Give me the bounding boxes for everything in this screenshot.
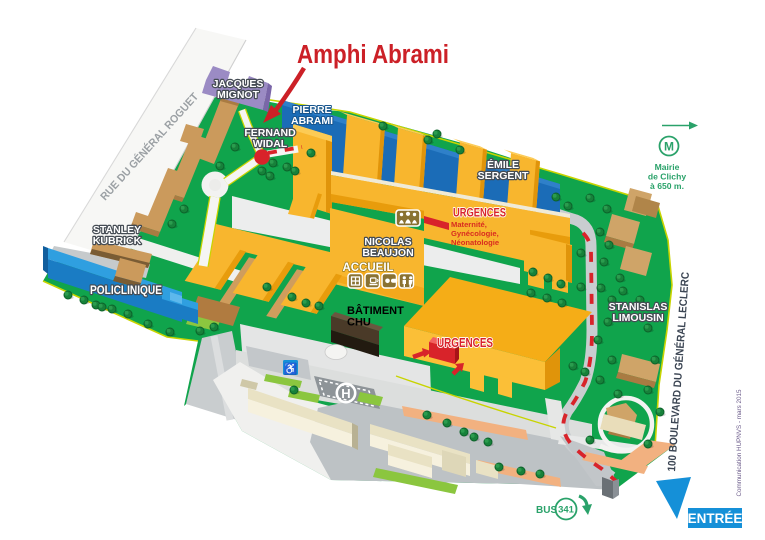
svg-text:Communication HUPNVS - mars 20: Communication HUPNVS - mars 2015 <box>736 389 743 497</box>
svg-text:URGENCES: URGENCES <box>437 336 493 350</box>
svg-text:Amphi Abrami: Amphi Abrami <box>297 41 449 69</box>
svg-text:STANLEYKUBRICK: STANLEYKUBRICK <box>93 224 142 247</box>
svg-text:M: M <box>664 140 674 154</box>
svg-text:JACQUESMIGNOT: JACQUESMIGNOT <box>213 78 264 101</box>
svg-text:BUS: BUS <box>536 505 557 516</box>
svg-text:PIERREABRAMI: PIERREABRAMI <box>291 104 333 127</box>
svg-text:NICOLASBEAUJON: NICOLASBEAUJON <box>362 236 413 259</box>
svg-text:♿: ♿ <box>284 363 298 376</box>
svg-text:341: 341 <box>558 505 575 516</box>
svg-text:ENTRÉE: ENTRÉE <box>688 511 743 526</box>
svg-text:POLICLINIQUE: POLICLINIQUE <box>90 285 162 297</box>
svg-text:URGENCES: URGENCES <box>453 206 506 220</box>
svg-text:ACCUEIL: ACCUEIL <box>342 262 393 274</box>
svg-text:STANISLASLIMOUSIN: STANISLASLIMOUSIN <box>609 301 668 324</box>
svg-text:H: H <box>341 386 350 401</box>
